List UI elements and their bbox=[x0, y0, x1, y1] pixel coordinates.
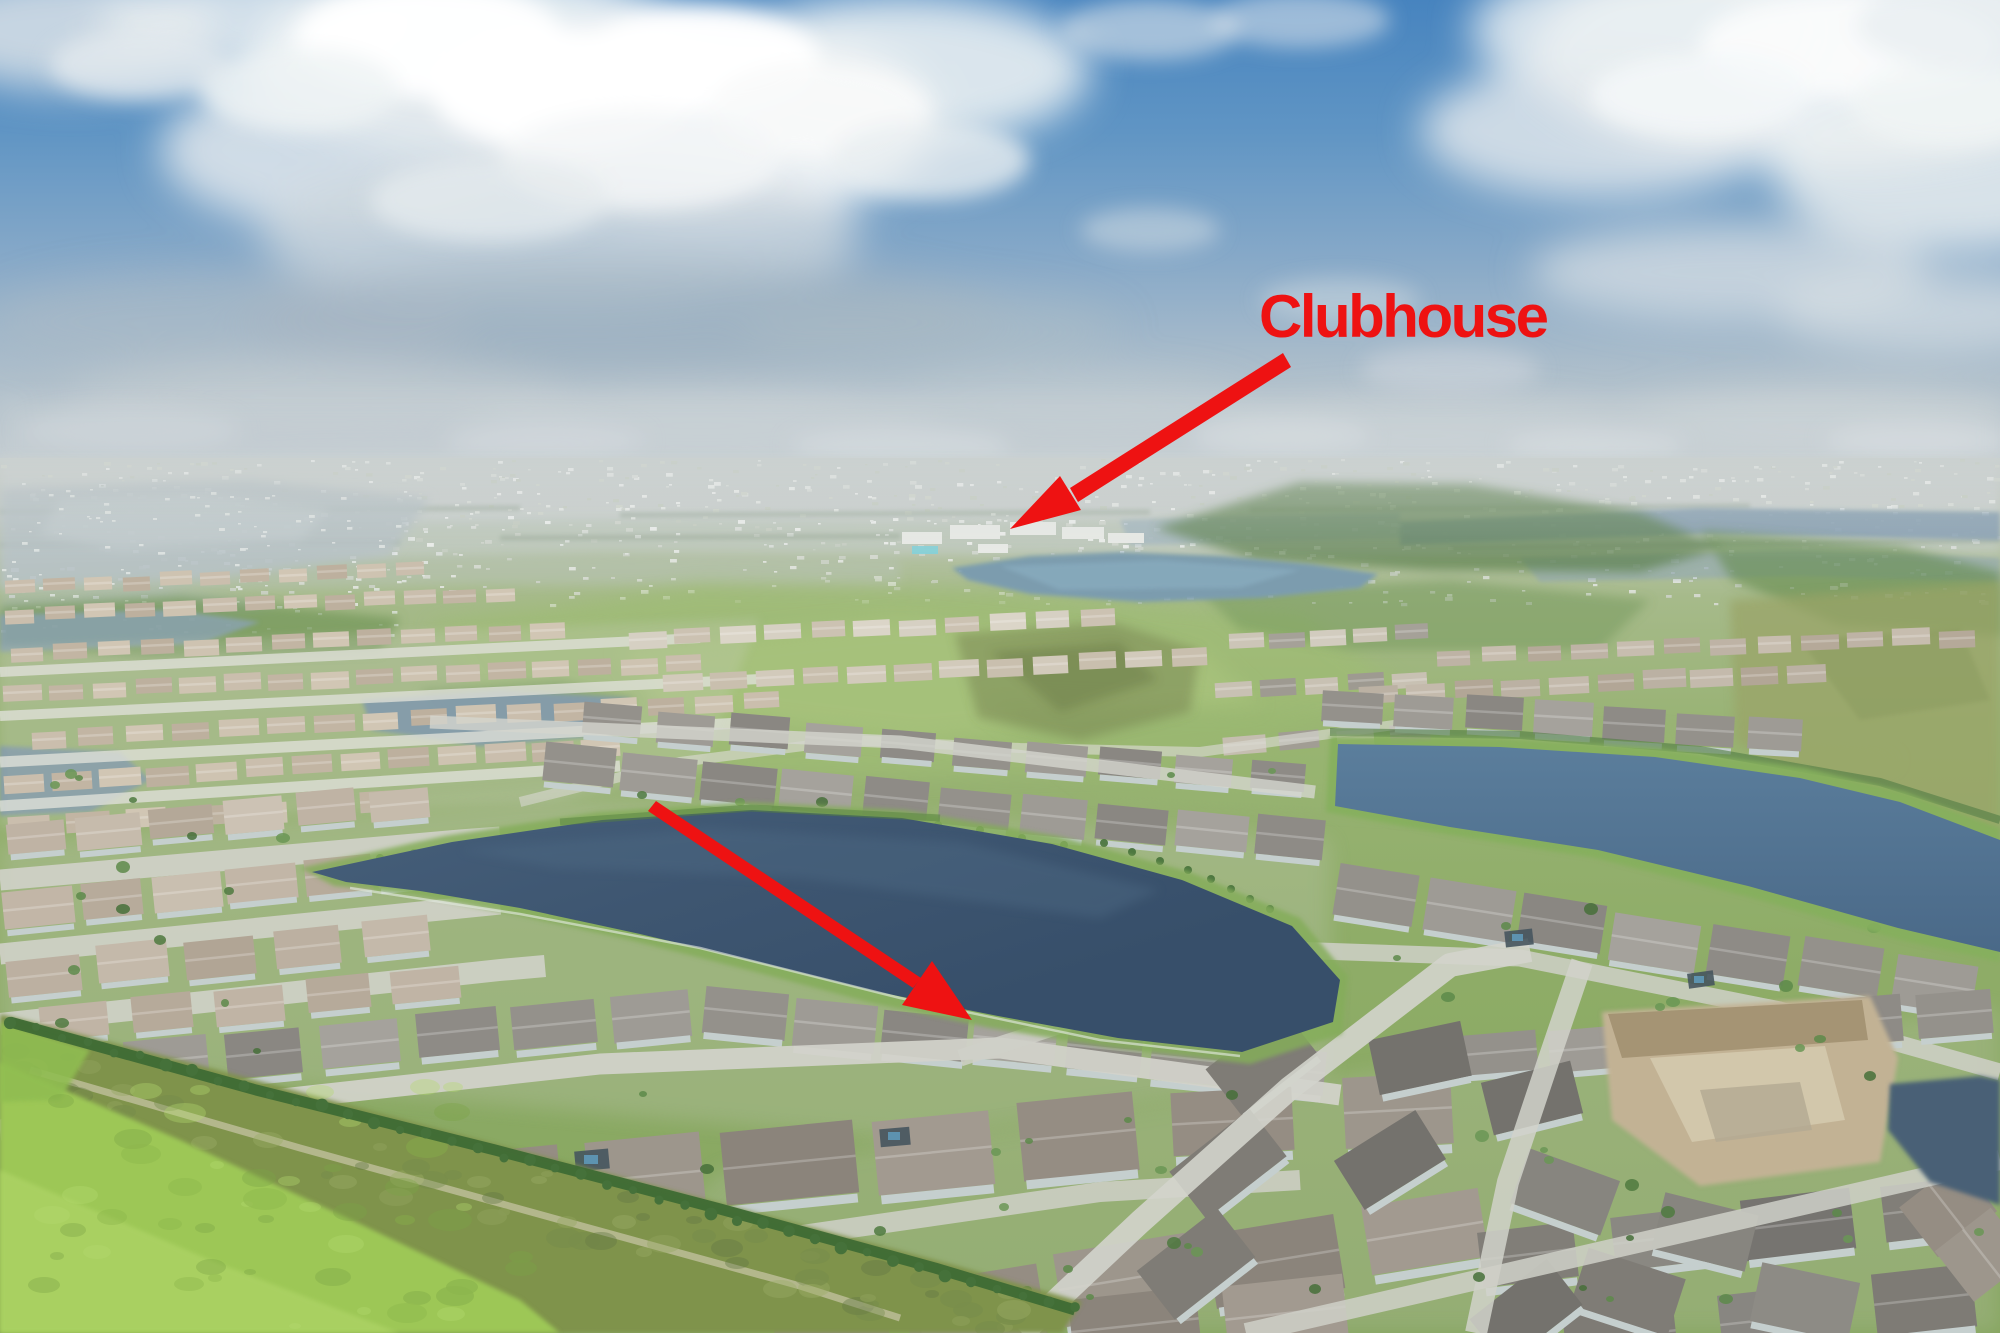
svg-text:Clubhouse: Clubhouse bbox=[1259, 283, 1548, 350]
